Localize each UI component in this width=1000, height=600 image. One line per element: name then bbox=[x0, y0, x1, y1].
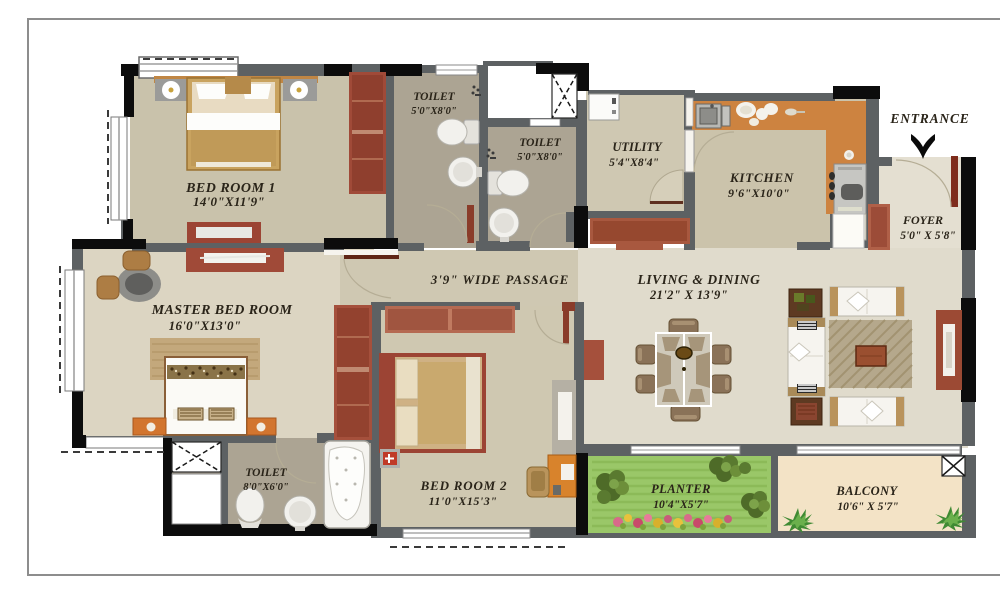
svg-text:5'0"X8'0": 5'0"X8'0" bbox=[411, 106, 457, 117]
svg-text:10'6" X 5'7": 10'6" X 5'7" bbox=[837, 501, 898, 513]
svg-text:5'0" X 5'8": 5'0" X 5'8" bbox=[900, 230, 956, 242]
svg-text:8'0"X6'0": 8'0"X6'0" bbox=[243, 482, 289, 493]
svg-text:5'0"X8'0": 5'0"X8'0" bbox=[517, 152, 563, 163]
svg-text:LIVING & DINING: LIVING & DINING bbox=[636, 272, 760, 287]
svg-text:PLANTER: PLANTER bbox=[651, 482, 711, 496]
svg-text:11'0"X15'3": 11'0"X15'3" bbox=[429, 494, 498, 508]
svg-text:9'6"X10'0": 9'6"X10'0" bbox=[728, 186, 790, 200]
svg-text:BED ROOM 2: BED ROOM 2 bbox=[420, 478, 508, 493]
svg-text:5'4"X8'4": 5'4"X8'4" bbox=[609, 157, 659, 169]
svg-text:ENTRANCE: ENTRANCE bbox=[889, 111, 969, 126]
svg-text:MASTER BED ROOM: MASTER BED ROOM bbox=[151, 303, 293, 318]
svg-text:UTILITY: UTILITY bbox=[612, 140, 663, 154]
svg-text:16'0"X13'0": 16'0"X13'0" bbox=[169, 318, 242, 333]
svg-text:21'2" X 13'9": 21'2" X 13'9" bbox=[649, 288, 728, 302]
svg-text:FOYER: FOYER bbox=[902, 213, 943, 227]
svg-text:14'0"X11'9": 14'0"X11'9" bbox=[193, 194, 265, 209]
svg-text:KITCHEN: KITCHEN bbox=[729, 170, 794, 185]
svg-text:TOILET: TOILET bbox=[413, 91, 455, 103]
svg-text:10'4"X5'7": 10'4"X5'7" bbox=[653, 499, 709, 511]
svg-text:TOILET: TOILET bbox=[245, 467, 287, 479]
svg-text:TOILET: TOILET bbox=[519, 137, 561, 149]
svg-text:BALCONY: BALCONY bbox=[835, 484, 898, 498]
svg-text:3'9" WIDE PASSAGE: 3'9" WIDE PASSAGE bbox=[430, 272, 570, 287]
